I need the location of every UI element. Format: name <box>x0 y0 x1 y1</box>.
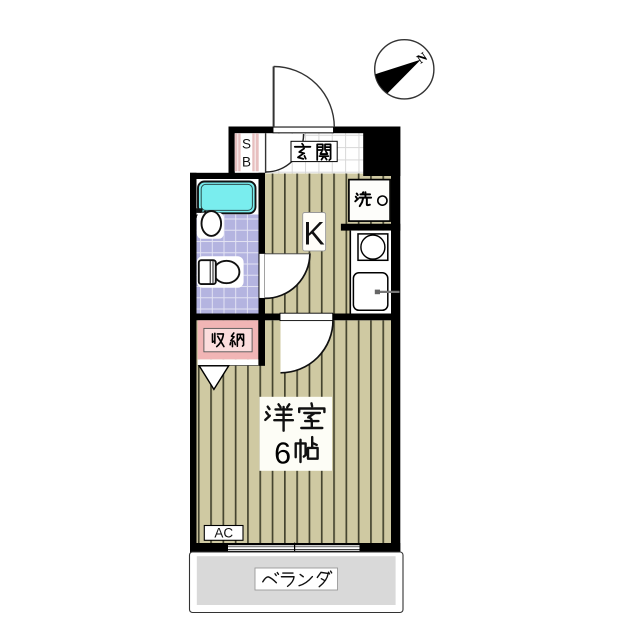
svg-text:K: K <box>303 216 324 252</box>
svg-text:S: S <box>242 137 251 152</box>
svg-text:B: B <box>242 155 251 170</box>
svg-text:6: 6 <box>274 437 291 471</box>
svg-text:AC: AC <box>214 526 233 541</box>
